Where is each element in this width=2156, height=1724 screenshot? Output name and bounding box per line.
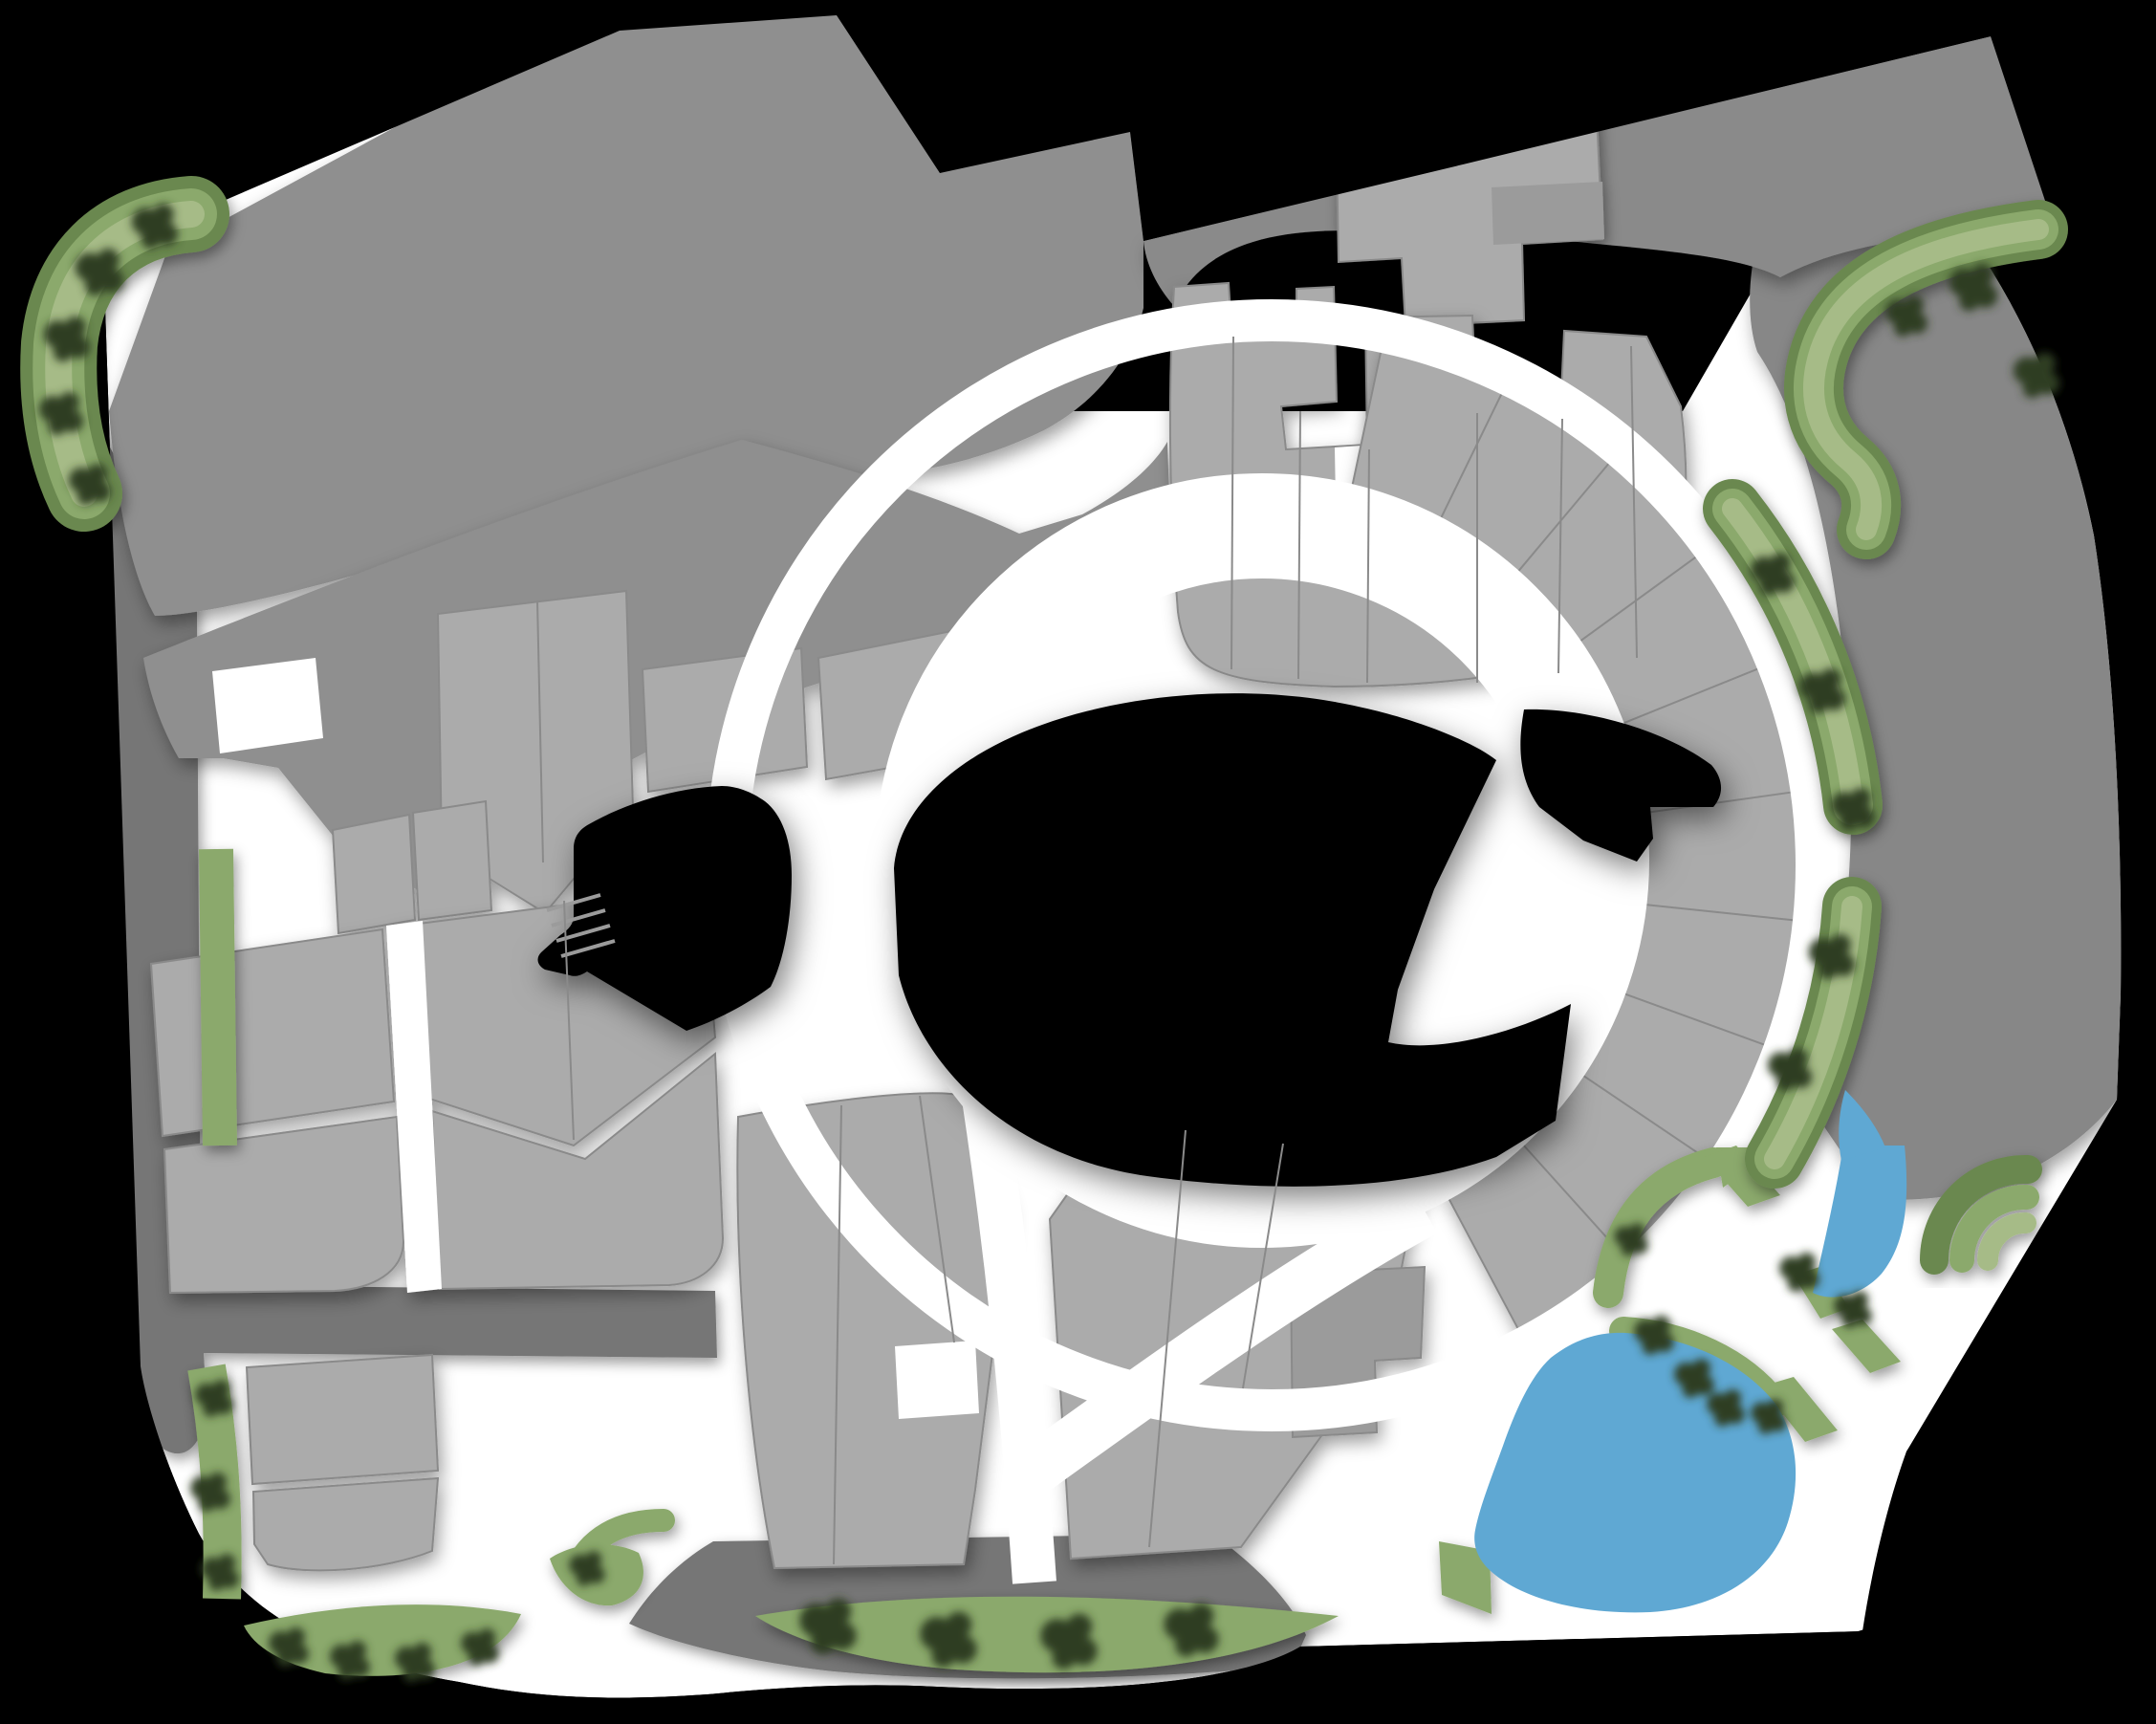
mid-band-block-d [333,815,415,933]
stepped-building-medium [1492,182,1604,245]
southwest-block-5 [247,1355,438,1484]
south-court-square [895,1341,979,1419]
site-plan-canvas [0,0,2156,1724]
southwest-block-6 [253,1478,438,1570]
mid-band-block-e [413,801,491,920]
southwest-block-1 [151,929,394,1136]
mid-band-courtyard [212,658,323,753]
site-plan-svg [0,0,2156,1724]
west-green-strip-upper [216,849,220,1146]
